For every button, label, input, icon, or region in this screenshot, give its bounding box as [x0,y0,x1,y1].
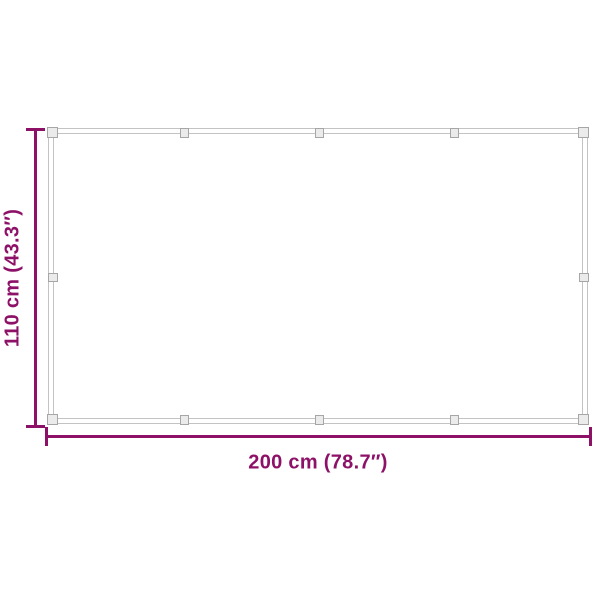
corner-connector-bottom-right [578,414,589,425]
product-frame [48,128,588,424]
height-dimension-line [26,128,45,428]
corner-connector-bottom-left [47,414,58,425]
width-dimension-line [45,427,592,446]
corner-connector-top-right [578,127,589,138]
edge-connector-bottom-3 [450,415,459,425]
edge-connector-bottom-1 [180,415,189,425]
edge-connector-top-1 [180,128,189,138]
width-label: 200 cm (78.7″) [248,452,387,475]
height-dimension-bottom-cap [26,425,45,428]
edge-connector-right-middle [579,273,589,282]
edge-connector-top-2 [315,128,324,138]
corner-connector-top-left [47,127,58,138]
height-label: 110 cm (43.3″) [2,209,25,347]
edge-connector-top-3 [450,128,459,138]
product-frame-inner-line [53,133,583,419]
width-dimension-right-cap [589,427,592,446]
width-dimension-shaft [45,435,592,438]
height-dimension-shaft [34,128,37,428]
diagram-canvas: 110 cm (43.3″) 200 cm (78.7″) [0,0,600,600]
edge-connector-bottom-2 [315,415,324,425]
edge-connector-left-middle [48,273,58,282]
